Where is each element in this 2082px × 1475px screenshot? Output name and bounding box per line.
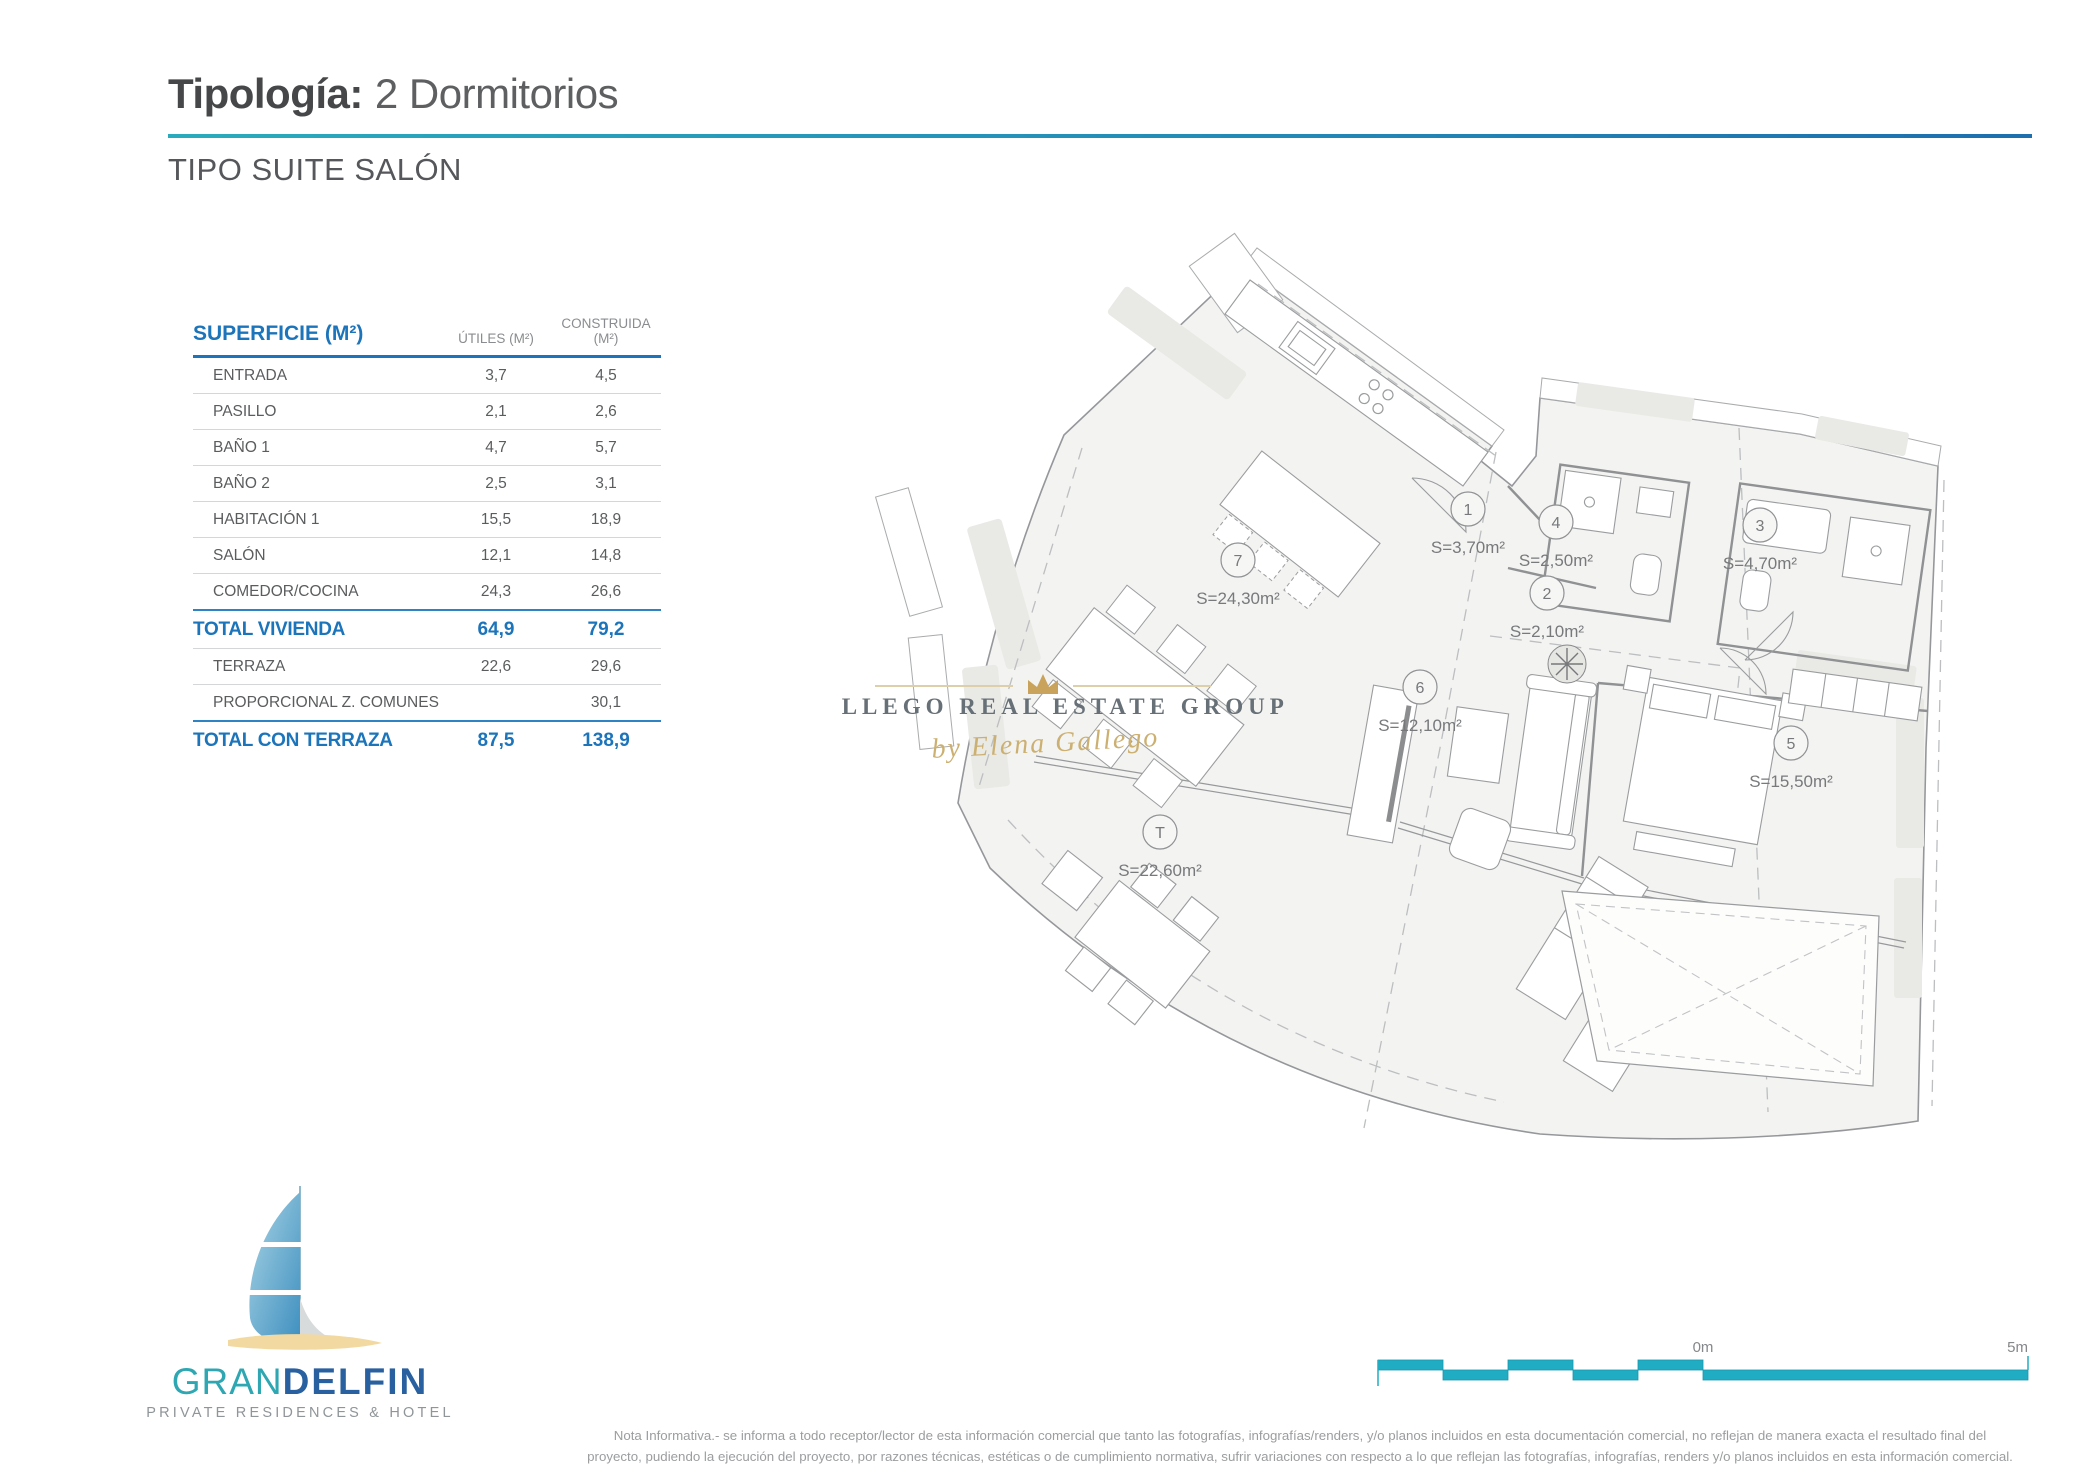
row-label: BAÑO 1 (193, 439, 441, 457)
row-label: PASILLO (193, 403, 441, 421)
sail-tower-icon (150, 1180, 450, 1350)
row-utiles-value: 4,7 (441, 439, 551, 457)
row-label: TERRAZA (193, 658, 441, 676)
row-construida-value: 14,8 (551, 547, 661, 565)
gran-delfin-logo: GRANDELFIN PRIVATE RESIDENCES & HOTEL (140, 1180, 460, 1421)
row-construida-value: 29,6 (551, 658, 661, 676)
table-row: TOTAL VIVIENDA64,979,2 (193, 611, 661, 649)
page-title: Tipología:2 Dormitorios (168, 70, 618, 118)
logo-wordmark: GRANDELFIN (140, 1361, 460, 1403)
table-row: COMEDOR/COCINA24,326,6 (193, 574, 661, 611)
row-construida-value: 18,9 (551, 511, 661, 529)
table-row: HABITACIÓN 115,518,9 (193, 502, 661, 538)
logo-delfin: DELFIN (283, 1361, 429, 1402)
row-label: BAÑO 2 (193, 475, 441, 493)
svg-text:S=12,10m²: S=12,10m² (1378, 716, 1462, 735)
svg-text:1: 1 (1464, 502, 1473, 519)
scale-zero-label: 0m (1693, 1339, 1714, 1356)
row-label: HABITACIÓN 1 (193, 511, 441, 529)
svg-text:4: 4 (1552, 515, 1561, 532)
row-construida-value: 26,6 (551, 583, 661, 601)
page-title-rest: 2 Dormitorios (375, 70, 618, 117)
page-subtitle: TIPO SUITE SALÓN (168, 152, 462, 188)
row-utiles-value: 3,7 (441, 367, 551, 385)
table-row: SALÓN12,114,8 (193, 538, 661, 574)
legal-disclaimer: Nota Informativa.- se informa a todo rec… (520, 1426, 2080, 1467)
superficie-table: SUPERFICIE (M²) ÚTILES (M²) CONSTRUIDA (… (193, 316, 661, 759)
svg-text:6: 6 (1416, 680, 1425, 697)
brochure-page: Tipología:2 Dormitorios TIPO SUITE SALÓN… (0, 0, 2082, 1475)
scale-bar: 0m 5m (1373, 1336, 2043, 1397)
floorplan-svg: GALLEGO REAL ESTATE GROUP by Elena Galle… (840, 228, 1990, 1148)
svg-text:2: 2 (1543, 586, 1552, 603)
table-row: BAÑO 22,53,1 (193, 466, 661, 502)
table-row: TOTAL CON TERRAZA87,5138,9 (193, 722, 661, 759)
row-construida-value: 5,7 (551, 439, 661, 457)
svg-text:S=3,70m²: S=3,70m² (1431, 538, 1506, 557)
svg-text:T: T (1155, 825, 1165, 842)
table-row: TERRAZA22,629,6 (193, 649, 661, 685)
page-title-bold: Tipología: (168, 70, 363, 117)
svg-text:S=4,70m²: S=4,70m² (1723, 554, 1798, 573)
row-construida-value: 30,1 (551, 694, 661, 712)
row-utiles-value: 12,1 (441, 547, 551, 565)
table-row: PASILLO2,12,6 (193, 394, 661, 430)
table-row: PROPORCIONAL Z. COMUNES30,1 (193, 685, 661, 722)
scale-bar-blocks (1378, 1360, 2028, 1380)
plant-icon (1548, 645, 1586, 683)
superficie-table-body: ENTRADA3,74,5PASILLO2,12,6BAÑO 14,75,7BA… (193, 358, 661, 759)
table-row: BAÑO 14,75,7 (193, 430, 661, 466)
row-utiles-value: 2,5 (441, 475, 551, 493)
row-construida-value: 138,9 (551, 730, 661, 752)
row-construida-value: 2,6 (551, 403, 661, 421)
title-divider (168, 134, 2032, 138)
row-utiles-value: 64,9 (441, 619, 551, 641)
row-label: ENTRADA (193, 367, 441, 385)
row-utiles-value: 22,6 (441, 658, 551, 676)
svg-text:3: 3 (1756, 518, 1765, 535)
row-utiles-value: 87,5 (441, 730, 551, 752)
row-label: TOTAL CON TERRAZA (193, 730, 441, 752)
col-construida: CONSTRUIDA (M²) (551, 316, 661, 346)
svg-text:S=24,30m²: S=24,30m² (1196, 589, 1280, 608)
row-label: SALÓN (193, 547, 441, 565)
row-label: PROPORCIONAL Z. COMUNES (193, 694, 441, 712)
row-construida-value: 79,2 (551, 619, 661, 641)
col-utiles: ÚTILES (M²) (441, 331, 551, 346)
disclaimer-line-1: Nota Informativa.- se informa a todo rec… (520, 1426, 2080, 1447)
row-construida-value: 3,1 (551, 475, 661, 493)
table-row: ENTRADA3,74,5 (193, 358, 661, 394)
scale-five-label: 5m (2007, 1339, 2028, 1356)
row-utiles-value: 15,5 (441, 511, 551, 529)
superficie-table-header: SUPERFICIE (M²) ÚTILES (M²) CONSTRUIDA (… (193, 316, 661, 358)
logo-gran: GRAN (172, 1361, 283, 1402)
patio-lightwell (1562, 891, 1879, 1086)
disclaimer-line-2: proyecto, pudiendo la ejecución del proy… (520, 1447, 2080, 1468)
col-superficie: SUPERFICIE (M²) (193, 322, 441, 346)
svg-text:S=2,10m²: S=2,10m² (1510, 622, 1585, 641)
row-utiles-value: 24,3 (441, 583, 551, 601)
watermark-title: GALLEGO REAL ESTATE GROUP (840, 694, 1289, 719)
row-label: TOTAL VIVIENDA (193, 619, 441, 641)
floorplan: GALLEGO REAL ESTATE GROUP by Elena Galle… (840, 228, 1990, 1148)
logo-tagline: PRIVATE RESIDENCES & HOTEL (140, 1405, 460, 1421)
svg-text:5: 5 (1787, 736, 1796, 753)
row-utiles-value: 2,1 (441, 403, 551, 421)
svg-text:S=15,50m²: S=15,50m² (1749, 772, 1833, 791)
svg-text:S=2,50m²: S=2,50m² (1519, 551, 1594, 570)
row-label: COMEDOR/COCINA (193, 583, 441, 601)
row-construida-value: 4,5 (551, 367, 661, 385)
svg-text:7: 7 (1234, 553, 1243, 570)
svg-text:S=22,60m²: S=22,60m² (1118, 861, 1202, 880)
